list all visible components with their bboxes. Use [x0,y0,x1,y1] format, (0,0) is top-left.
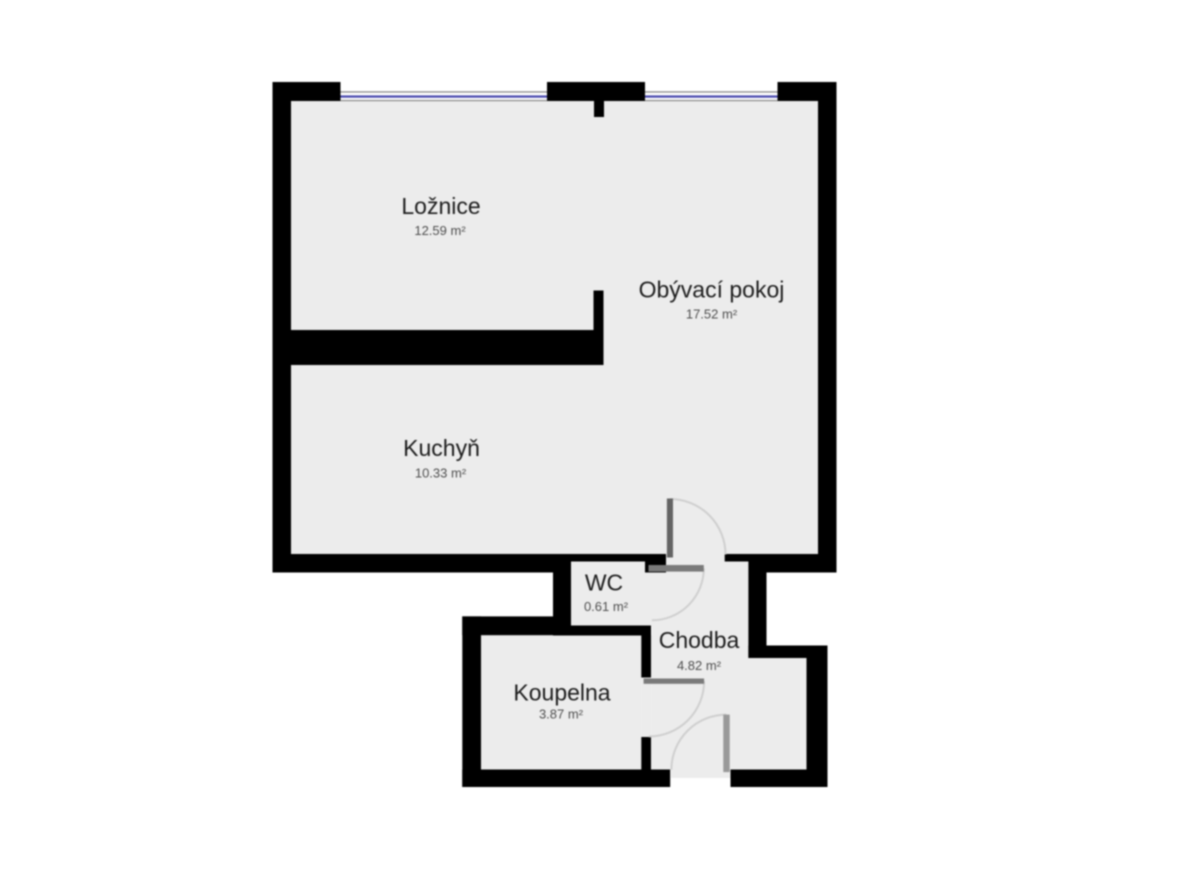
svg-text:4.82 m²: 4.82 m² [677,658,722,673]
svg-text:Chodba: Chodba [659,627,740,653]
svg-text:Ložnice: Ložnice [401,193,480,219]
svg-text:Koupelna: Koupelna [513,680,610,706]
svg-text:3.87 m²: 3.87 m² [539,707,584,722]
svg-text:10.33 m²: 10.33 m² [415,466,467,481]
svg-text:Kuchyň: Kuchyň [403,435,480,461]
svg-text:12.59 m²: 12.59 m² [414,223,466,238]
svg-text:17.52 m²: 17.52 m² [686,307,738,322]
svg-text:WC: WC [585,569,623,595]
svg-text:0.61 m²: 0.61 m² [584,599,629,614]
svg-text:Obývací pokoj: Obývací pokoj [639,277,785,303]
